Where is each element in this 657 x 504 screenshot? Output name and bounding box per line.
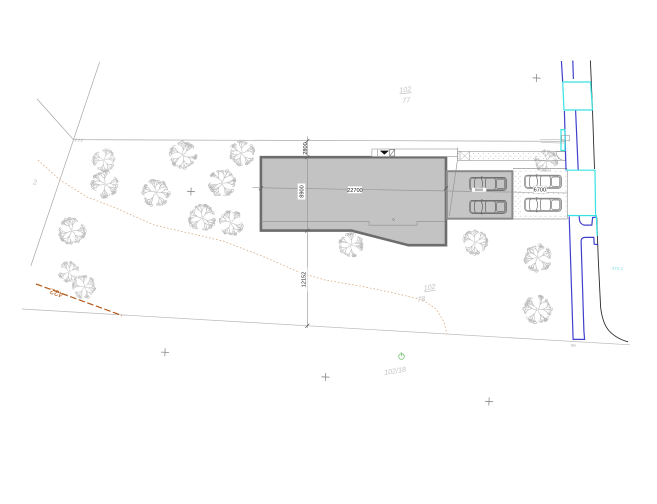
- svg-text:22700: 22700: [347, 188, 363, 194]
- svg-text:102: 102: [399, 84, 412, 94]
- svg-text:5000: 5000: [475, 188, 483, 192]
- svg-text:6vv: 6vv: [571, 344, 576, 348]
- svg-text:102: 102: [423, 282, 436, 293]
- svg-text:8900: 8900: [300, 185, 306, 197]
- svg-text:4T6 2: 4T6 2: [612, 266, 624, 271]
- svg-text:12152: 12152: [302, 272, 308, 288]
- svg-text:78: 78: [417, 294, 426, 304]
- svg-text:6700: 6700: [534, 188, 546, 194]
- svg-text:2: 2: [32, 178, 37, 187]
- svg-text:2800: 2800: [303, 142, 309, 154]
